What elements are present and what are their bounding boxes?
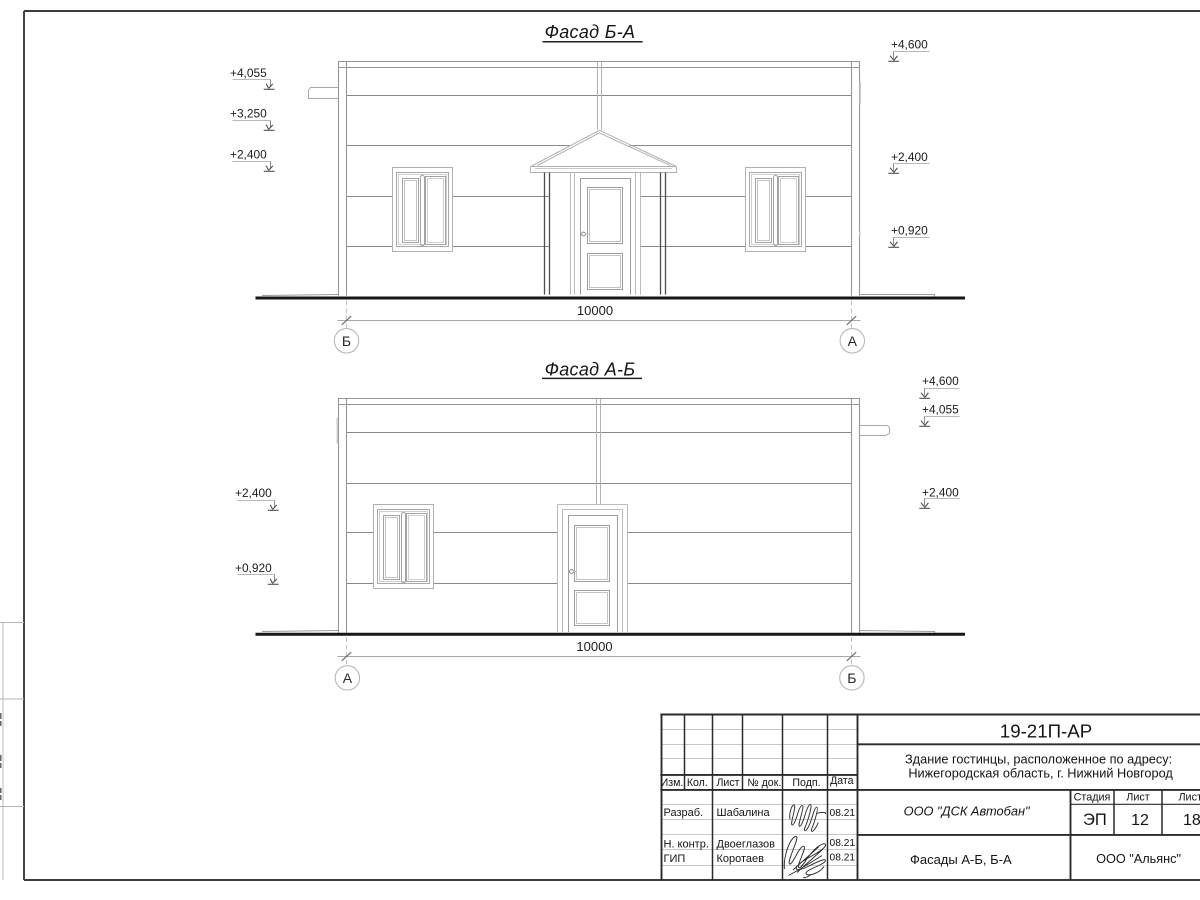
svg-text:Кол.: Кол. xyxy=(687,777,708,789)
svg-text:+2,400: +2,400 xyxy=(235,486,272,500)
svg-text:10000: 10000 xyxy=(576,639,612,654)
svg-text:+4,600: +4,600 xyxy=(891,37,928,51)
svg-text:А: А xyxy=(343,670,353,686)
svg-text:Нижегородская область, г. Нижн: Нижегородская область, г. Нижний Новгоро… xyxy=(908,765,1173,780)
svg-text:+4,055: +4,055 xyxy=(230,66,267,80)
svg-text:Изм.: Изм. xyxy=(661,777,684,789)
svg-text:+2,400: +2,400 xyxy=(922,485,959,499)
svg-text:ООО "Альянс": ООО "Альянс" xyxy=(1096,852,1181,866)
svg-text:18: 18 xyxy=(1183,812,1200,829)
svg-text:Фасады А-Б, Б-А: Фасады А-Б, Б-А xyxy=(910,852,1012,867)
svg-text:Шабалина: Шабалина xyxy=(717,807,771,819)
svg-text:Фасад А-Б: Фасад А-Б xyxy=(545,359,636,379)
svg-text:+3,250: +3,250 xyxy=(230,106,267,120)
svg-text:10000: 10000 xyxy=(577,303,613,318)
svg-text:+4,600: +4,600 xyxy=(922,374,959,388)
svg-text:Лист: Лист xyxy=(716,777,739,789)
svg-text:ЭП: ЭП xyxy=(1083,811,1107,829)
svg-text:Листов: Листов xyxy=(1178,792,1200,804)
svg-text:12: 12 xyxy=(1131,812,1149,829)
svg-text:+4,055: +4,055 xyxy=(922,403,959,417)
svg-text:№ док.: № док. xyxy=(747,777,781,789)
svg-text:+2,400: +2,400 xyxy=(230,148,267,162)
svg-text:+0,920: +0,920 xyxy=(891,223,928,237)
svg-text:08.21: 08.21 xyxy=(830,838,856,849)
svg-text:19-21П-АР: 19-21П-АР xyxy=(1000,720,1092,741)
svg-text:Фасад Б-А: Фасад Б-А xyxy=(545,22,636,42)
svg-text:08.21: 08.21 xyxy=(830,852,856,863)
svg-text:ООО "ДСК Автобан": ООО "ДСК Автобан" xyxy=(904,804,1031,819)
svg-text:Подп.: Подп. xyxy=(792,777,820,789)
svg-text:+2,400: +2,400 xyxy=(891,150,928,164)
svg-text:Дата: Дата xyxy=(830,775,854,787)
svg-text:+0,920: +0,920 xyxy=(235,561,272,575)
svg-text:Б: Б xyxy=(847,670,856,686)
svg-text:Разраб.: Разраб. xyxy=(664,807,704,819)
svg-text:08.21: 08.21 xyxy=(830,808,856,819)
svg-text:Н. контр.: Н. контр. xyxy=(664,838,709,850)
svg-text:Двоеглазов: Двоеглазов xyxy=(717,838,776,850)
svg-text:Стадия: Стадия xyxy=(1074,792,1111,804)
svg-text:Лист: Лист xyxy=(1126,792,1150,804)
svg-text:Здание гостинцы, расположенное: Здание гостинцы, расположенное по адресу… xyxy=(905,751,1172,766)
svg-text:А: А xyxy=(848,333,858,349)
svg-text:ГИП: ГИП xyxy=(664,853,686,865)
svg-text:Коротаев: Коротаев xyxy=(717,853,765,865)
svg-text:Б: Б xyxy=(342,333,351,349)
